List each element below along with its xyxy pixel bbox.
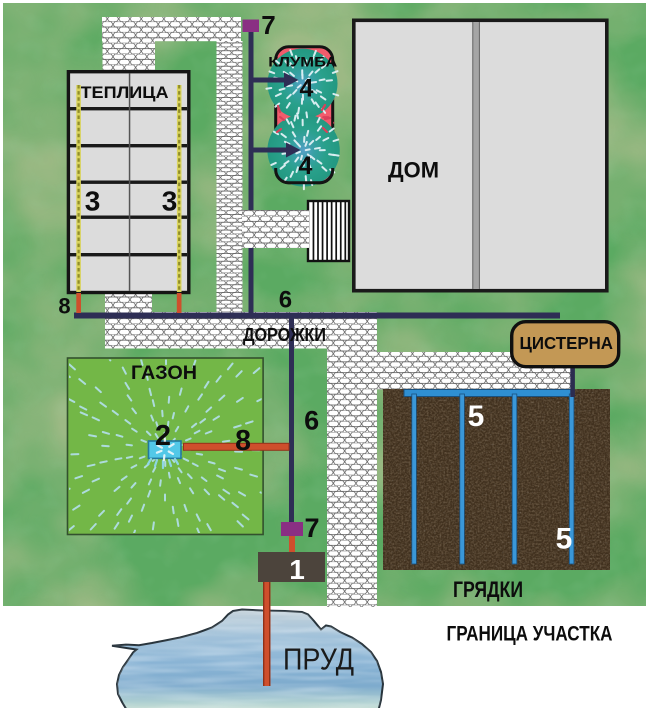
svg-text:6: 6	[304, 405, 319, 435]
svg-text:ЦИСТЕРНА: ЦИСТЕРНА	[520, 333, 614, 353]
svg-text:1: 1	[289, 554, 305, 585]
svg-text:8: 8	[58, 294, 70, 319]
svg-text:ДОМ: ДОМ	[388, 158, 439, 183]
svg-text:8: 8	[235, 425, 251, 457]
svg-text:ГАЗОН: ГАЗОН	[131, 362, 197, 384]
svg-text:ДОРОЖКИ: ДОРОЖКИ	[243, 324, 326, 345]
svg-text:ГРАНИЦА УЧАСТКА: ГРАНИЦА УЧАСТКА	[447, 622, 613, 646]
svg-text:7: 7	[261, 10, 275, 40]
svg-text:ГРЯДКИ: ГРЯДКИ	[453, 577, 523, 602]
svg-text:ПРУД: ПРУД	[283, 642, 354, 677]
svg-text:5: 5	[468, 400, 485, 433]
svg-text:7: 7	[304, 513, 319, 543]
svg-text:3: 3	[85, 186, 101, 217]
svg-text:2: 2	[155, 420, 171, 452]
svg-text:4: 4	[300, 75, 314, 103]
svg-text:3: 3	[162, 186, 178, 217]
svg-text:5: 5	[556, 523, 573, 556]
svg-text:6: 6	[279, 287, 292, 314]
svg-text:ТЕПЛИЦА: ТЕПЛИЦА	[81, 84, 169, 102]
svg-text:4: 4	[299, 152, 313, 180]
svg-text:КЛУМБА: КЛУМБА	[268, 55, 337, 70]
